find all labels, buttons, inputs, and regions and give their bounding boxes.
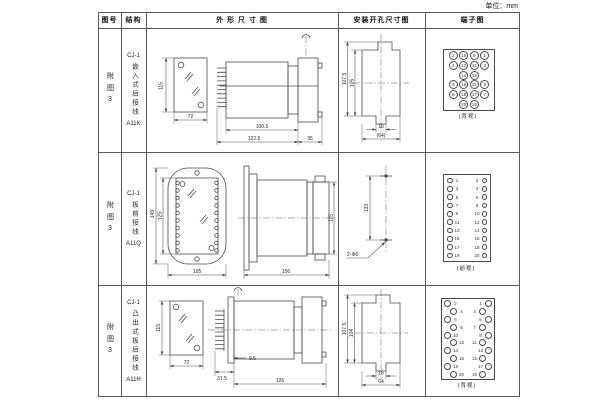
terminal-number: 12 bbox=[474, 220, 481, 225]
terminal-number: 12 bbox=[458, 340, 465, 345]
dim-label: 104 bbox=[349, 329, 355, 338]
terminal-number: 15 bbox=[471, 356, 478, 361]
figure-no-cell-row1: 附图3 bbox=[98, 28, 121, 152]
relay-front-view bbox=[168, 168, 226, 264]
dim-label: 115 bbox=[329, 214, 335, 222]
terminal-number: 16 bbox=[458, 356, 465, 361]
terminal-circle bbox=[444, 363, 451, 370]
terminal-number: 9 bbox=[477, 333, 484, 338]
terminal-circle: 20 bbox=[459, 100, 468, 109]
terminal-number: 13 bbox=[454, 228, 461, 233]
terminal-circle: 15 bbox=[470, 80, 479, 89]
terminal-caption-row2: (前视) bbox=[443, 264, 489, 272]
terminal-number: 17 bbox=[477, 364, 484, 369]
header-outline: 外 形 尺 寸 图 bbox=[146, 12, 338, 28]
header-figure-no: 图号 bbox=[98, 12, 121, 28]
terminal-number: 8 bbox=[458, 325, 465, 330]
terminal-circle bbox=[485, 316, 492, 323]
terminal-circle: 17 bbox=[470, 90, 479, 99]
terminal-caption-row3: (背视) bbox=[441, 381, 493, 389]
terminal-number: 6 bbox=[452, 317, 459, 322]
structure-model: CJ-1 bbox=[127, 191, 140, 197]
terminal-circle bbox=[447, 228, 453, 234]
relay-side-view bbox=[217, 35, 322, 122]
relay-side-view bbox=[215, 288, 326, 363]
outline-drawing-row2: 149 125 105 156 115 bbox=[146, 152, 338, 285]
terminal-number: 16 bbox=[474, 236, 481, 241]
dim-label: 64 bbox=[378, 379, 384, 385]
terminal-number: 14 bbox=[474, 228, 481, 233]
terminal-circle bbox=[449, 71, 458, 80]
structure-cell-row3: CJ-1 凸出式板后接线 A11H bbox=[121, 285, 146, 397]
terminal-number: 11 bbox=[471, 340, 478, 345]
terminal-circle bbox=[479, 339, 486, 346]
terminal-circle: 1 bbox=[480, 51, 489, 60]
terminal-number: 11 bbox=[454, 220, 461, 225]
terminal-number: 19 bbox=[471, 372, 478, 377]
extension-lines bbox=[344, 295, 400, 388]
terminal-number: 20 bbox=[474, 253, 481, 258]
terminal-circle: 5 bbox=[480, 80, 489, 89]
dimension-lines bbox=[348, 295, 401, 385]
terminal-circle bbox=[444, 316, 451, 323]
table-border-right bbox=[519, 12, 520, 397]
outline-drawing-row1: 115 72 100.5 122.5 35 bbox=[146, 28, 338, 152]
terminal-circle: 14 bbox=[459, 71, 468, 80]
terminal-circle bbox=[447, 253, 453, 259]
terminal-circle bbox=[482, 203, 488, 209]
terminal-circle: 10 bbox=[459, 51, 468, 60]
extension-lines bbox=[344, 42, 400, 142]
terminal-circle bbox=[447, 219, 453, 225]
terminal-circle: 6 bbox=[449, 80, 458, 89]
terminal-number: 9 bbox=[454, 211, 461, 216]
structure-model: CJ-1 bbox=[127, 53, 140, 59]
dim-label: 105 bbox=[350, 79, 356, 88]
terminal-circle: 18 bbox=[459, 90, 468, 99]
terminal-circle bbox=[450, 371, 457, 378]
terminal-circle: 11 bbox=[470, 61, 479, 70]
terminal-circle bbox=[479, 371, 486, 378]
dim-label: 156 bbox=[282, 269, 291, 275]
terminal-number: 10 bbox=[474, 211, 481, 216]
terminal-diagram-row2: 1234567891011121314151617181920 bbox=[443, 174, 491, 262]
figure-no-text: 附图3 bbox=[105, 72, 115, 108]
terminal-number: 6 bbox=[474, 195, 481, 200]
terminal-number: 18 bbox=[452, 364, 459, 369]
dim-label: 35 bbox=[307, 136, 313, 142]
terminal-circle bbox=[447, 211, 453, 217]
terminal-circle bbox=[447, 244, 453, 250]
terminal-circle: 2 bbox=[449, 51, 458, 60]
relay-front-view bbox=[174, 58, 207, 112]
structure-cell-row1: CJ-1 嵌入式后接线 A11K bbox=[121, 28, 146, 152]
figure-no-text: 附图3 bbox=[105, 201, 115, 237]
extension-lines bbox=[159, 301, 326, 388]
relay-front-view bbox=[170, 301, 203, 355]
terminal-circle bbox=[447, 236, 453, 242]
dim-label: 115 bbox=[159, 82, 165, 90]
terminal-number: 18 bbox=[474, 245, 481, 250]
terminal-number: 19 bbox=[454, 253, 461, 258]
terminal-circle bbox=[485, 332, 492, 339]
terminal-number: 3 bbox=[471, 309, 478, 314]
dimension-lines bbox=[166, 58, 322, 142]
structure-code: A11K bbox=[126, 121, 140, 127]
terminal-circle: 8 bbox=[449, 90, 458, 99]
terminal-circle: 3 bbox=[480, 61, 489, 70]
terminal-circle bbox=[449, 100, 458, 109]
dim-label: 2-Φ6 bbox=[347, 252, 358, 258]
terminal-number: 10 bbox=[452, 333, 459, 338]
terminal-circle: 19 bbox=[470, 100, 479, 109]
col-divider-4 bbox=[425, 12, 426, 397]
terminal-circle bbox=[482, 253, 488, 259]
dimension-lines bbox=[348, 42, 401, 139]
terminal-circle bbox=[482, 194, 488, 200]
terminal-number: 20 bbox=[458, 372, 465, 377]
dim-label: 107.5 bbox=[342, 323, 348, 336]
terminal-circle: 12 bbox=[459, 61, 468, 70]
terminal-number: 1 bbox=[454, 178, 461, 183]
terminal-circle bbox=[482, 178, 488, 184]
terminal-diagram-row1: 2109141211314136161558181772019 bbox=[443, 49, 495, 111]
terminal-number: 7 bbox=[454, 203, 461, 208]
terminal-circle bbox=[485, 347, 492, 354]
terminal-circle bbox=[450, 308, 457, 315]
dim-label: (64) bbox=[377, 133, 386, 139]
terminal-circle bbox=[480, 71, 489, 80]
terminal-circle bbox=[447, 203, 453, 209]
dim-label: 133 bbox=[364, 204, 370, 213]
figure-no-cell-row2: 附图3 bbox=[98, 152, 121, 285]
terminal-circle bbox=[480, 100, 489, 109]
dim-label: 126 bbox=[276, 378, 285, 384]
terminal-circle bbox=[479, 308, 486, 315]
terminal-circle bbox=[444, 347, 451, 354]
terminal-circle: 7 bbox=[480, 90, 489, 99]
terminal-circle bbox=[479, 324, 486, 331]
dim-label: 107.5 bbox=[342, 73, 348, 86]
terminal-circle bbox=[485, 363, 492, 370]
terminal-circle: 16 bbox=[459, 80, 468, 89]
dim-label: 122.5 bbox=[248, 136, 261, 142]
structure-model: CJ-1 bbox=[127, 300, 140, 306]
outline-drawing-row3: 115 72 31.5 9.5 126 bbox=[146, 285, 338, 397]
terminal-number: 13 bbox=[477, 348, 484, 353]
terminal-circle bbox=[444, 300, 451, 307]
terminal-number: 2 bbox=[474, 178, 481, 183]
terminal-number: 5 bbox=[454, 195, 461, 200]
mounting-drawing-row2: 133 2-Φ6 bbox=[338, 152, 425, 285]
terminal-circle bbox=[482, 228, 488, 234]
dim-label: 115 bbox=[156, 324, 162, 332]
terminal-circle bbox=[450, 355, 457, 362]
terminal-circle bbox=[450, 324, 457, 331]
header-structure: 结构 bbox=[121, 12, 146, 28]
terminal-circle bbox=[479, 355, 486, 362]
dim-label: 16 bbox=[378, 124, 384, 130]
terminal-circle bbox=[450, 339, 457, 346]
dim-label: 149 bbox=[150, 210, 156, 219]
terminal-number: 2 bbox=[452, 301, 459, 306]
dimension-lines bbox=[162, 301, 326, 384]
terminal-circle bbox=[447, 178, 453, 184]
dim-label: 100.5 bbox=[256, 124, 269, 130]
terminal-number: 17 bbox=[454, 245, 461, 250]
terminal-circle bbox=[482, 186, 488, 192]
terminal-circle bbox=[482, 219, 488, 225]
terminal-circle bbox=[447, 186, 453, 192]
terminal-number: 4 bbox=[474, 186, 481, 191]
terminal-diagram-row3: 2143658710912111413161518172019 bbox=[441, 298, 495, 380]
terminal-number: 1 bbox=[477, 301, 484, 306]
terminal-circle: 9 bbox=[470, 51, 479, 60]
terminal-circle bbox=[482, 236, 488, 242]
unit-label: 单位：mm bbox=[430, 1, 518, 11]
terminal-circle: 4 bbox=[449, 61, 458, 70]
structure-cell-row2: CJ-1 板前接线 A11Q bbox=[121, 152, 146, 285]
dim-label: 31.5 bbox=[217, 376, 227, 382]
terminal-circle bbox=[447, 194, 453, 200]
structure-type: 嵌入式后接线 bbox=[129, 63, 139, 117]
figure-no-text: 附图3 bbox=[105, 323, 115, 359]
terminal-number: 7 bbox=[471, 325, 478, 330]
header-terminal: 端子图 bbox=[425, 12, 520, 28]
terminal-number: 4 bbox=[458, 309, 465, 314]
terminal-number: 15 bbox=[454, 236, 461, 241]
terminal-number: 5 bbox=[477, 317, 484, 322]
mounting-drawing-row3: 107.5 104 16 64 bbox=[338, 285, 425, 397]
dim-label: 72 bbox=[188, 114, 194, 120]
structure-type: 凸出式板后接线 bbox=[129, 310, 139, 373]
structure-code: A11Q bbox=[126, 241, 141, 247]
figure-no-cell-row3: 附图3 bbox=[98, 285, 121, 397]
mounting-drawing-row1: 107.5 105 16 (64) bbox=[338, 28, 425, 152]
terminal-circle bbox=[482, 244, 488, 250]
terminal-number: 14 bbox=[452, 348, 459, 353]
dim-label: 9.5 bbox=[249, 356, 256, 362]
terminal-circle bbox=[444, 332, 451, 339]
terminal-caption-row1: (背视) bbox=[443, 112, 493, 120]
dim-label: 125 bbox=[158, 212, 164, 221]
spec-sheet-page: 单位：mm 图号 结构 外 形 尺 寸 图 安装开孔尺寸图 端子图 附图3 CJ… bbox=[0, 0, 600, 400]
dim-label: 72 bbox=[184, 360, 190, 366]
structure-type: 板前接线 bbox=[129, 201, 139, 237]
terminal-number: 3 bbox=[454, 186, 461, 191]
dim-label: 16 bbox=[378, 371, 384, 377]
terminal-number: 8 bbox=[474, 203, 481, 208]
structure-code: A11H bbox=[126, 377, 141, 383]
terminal-circle bbox=[485, 300, 492, 307]
terminal-circle bbox=[482, 211, 488, 217]
terminal-circle: 13 bbox=[470, 71, 479, 80]
header-mounting: 安装开孔尺寸图 bbox=[338, 12, 425, 28]
dim-label: 105 bbox=[193, 269, 202, 275]
